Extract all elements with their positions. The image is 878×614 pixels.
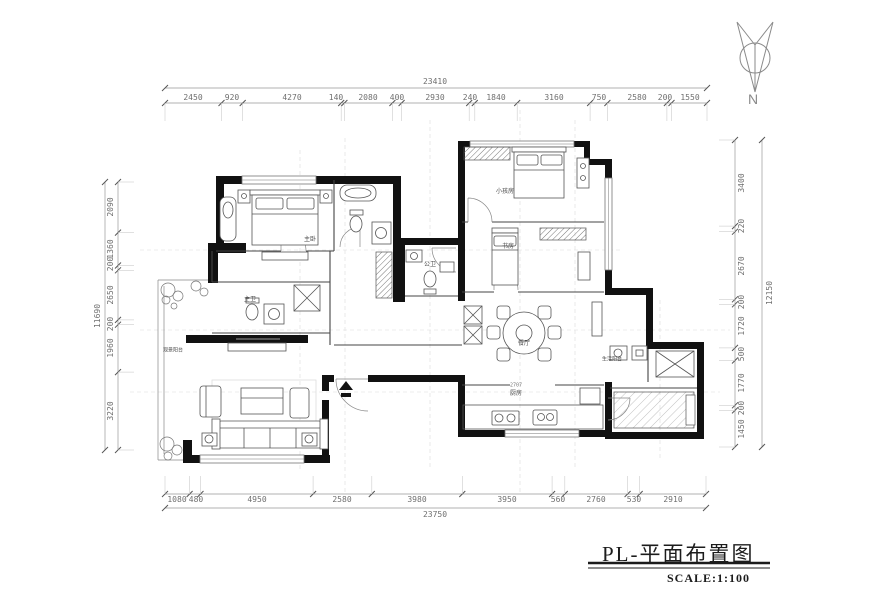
dim-label-right: 2670 [738, 256, 746, 275]
dim-label-top: 2450 [183, 94, 202, 102]
dim-label-bottom: 2760 [586, 496, 605, 504]
drawing-title: PL-平面布置图 [602, 538, 755, 568]
room-label-dining: 餐厅 [518, 341, 530, 347]
window [200, 455, 304, 463]
dim-label-top: 1840 [486, 94, 505, 102]
furniture-master-bath [340, 185, 391, 244]
balcony-plants [160, 281, 208, 460]
dim-label-left: 200 [107, 317, 115, 331]
dim-label-bottom: 560 [551, 496, 565, 504]
dim-label-top: 240 [463, 94, 477, 102]
north-label: N [748, 91, 758, 107]
dim-label-left: 1960 [107, 338, 115, 357]
dim-label-left: 200 [107, 257, 115, 271]
furniture-kitchen [463, 388, 603, 429]
dim-label-left: 1360 [107, 239, 115, 258]
entry-arrow-icon [339, 381, 353, 397]
room-label-master-bath: 主卫 [244, 297, 256, 303]
furniture-living [200, 339, 328, 449]
dim-label-right: 200 [738, 295, 746, 309]
dim-label-bottom: 3980 [407, 496, 426, 504]
dim-label-top: 1550 [680, 94, 699, 102]
dim-label-top: 2930 [425, 94, 444, 102]
room-label-kitchen: 厨房 [510, 391, 522, 397]
dim-total-top: 23410 [423, 78, 447, 86]
furniture-second-bath [246, 285, 320, 324]
room-label-kids-room: 小孩房 [496, 189, 514, 195]
furniture-dining [464, 302, 602, 361]
dim-total-left: 11690 [94, 304, 102, 328]
scale-label: SCALE:1:100 [667, 571, 750, 586]
dim-label-bottom: 2910 [663, 496, 682, 504]
window [605, 178, 612, 270]
equipment-room [614, 392, 695, 428]
dim-label-bottom: 3950 [497, 496, 516, 504]
dim-total-bottom: 23750 [423, 511, 447, 519]
furniture-kids-room [512, 147, 589, 198]
window [242, 176, 316, 184]
dim-label-top: 2580 [627, 94, 646, 102]
elevator-shaft [656, 351, 694, 377]
dim-label-right: 3400 [738, 173, 746, 192]
dim-label-left: 2090 [107, 197, 115, 216]
dim-label-right: 200 [738, 401, 746, 415]
room-label-guest-bath: 公卫 [424, 262, 436, 268]
dim-label-top: 750 [592, 94, 606, 102]
dim-label-left: 3220 [107, 401, 115, 420]
room-label-service-balcony: 生活阳台 [602, 358, 622, 363]
dim-label-top: 400 [390, 94, 404, 102]
dim-label-bottom: 480 [189, 496, 203, 504]
room-label-master-bedroom: 主卧 [304, 237, 316, 243]
dim-label-bottom: 1080 [167, 496, 186, 504]
window [505, 430, 579, 437]
dim-label-bottom: 4950 [247, 496, 266, 504]
dim-label-right: 500 [738, 347, 746, 361]
dim-label-top: 4270 [282, 94, 301, 102]
room-label-study: 书房 [502, 244, 514, 250]
room-label-view-balcony: 观景阳台 [163, 349, 183, 354]
view-balcony-outline [158, 280, 208, 460]
dim-label-top: 140 [329, 94, 343, 102]
dim-label-bottom: 2580 [332, 496, 351, 504]
dim-label-top: 2080 [358, 94, 377, 102]
dim-label-right: 1720 [738, 316, 746, 335]
dim-label-top: 920 [225, 94, 239, 102]
floor-plan-sheet: 2450 920 4270 140 2080 400 2930 240 1840… [0, 0, 878, 614]
dim-label-top: 3160 [544, 94, 563, 102]
interior-dim-kitchen: 2707 [510, 384, 522, 389]
dim-label-left: 2650 [107, 285, 115, 304]
north-arrow-icon [737, 22, 773, 92]
dim-label-bottom: 530 [627, 496, 641, 504]
dim-label-right: 220 [738, 219, 746, 233]
dim-label-right: 1770 [738, 373, 746, 392]
window [470, 141, 574, 147]
dim-total-right: 12150 [766, 281, 774, 305]
dim-label-right: 1450 [738, 419, 746, 438]
dim-label-top: 200 [658, 94, 672, 102]
